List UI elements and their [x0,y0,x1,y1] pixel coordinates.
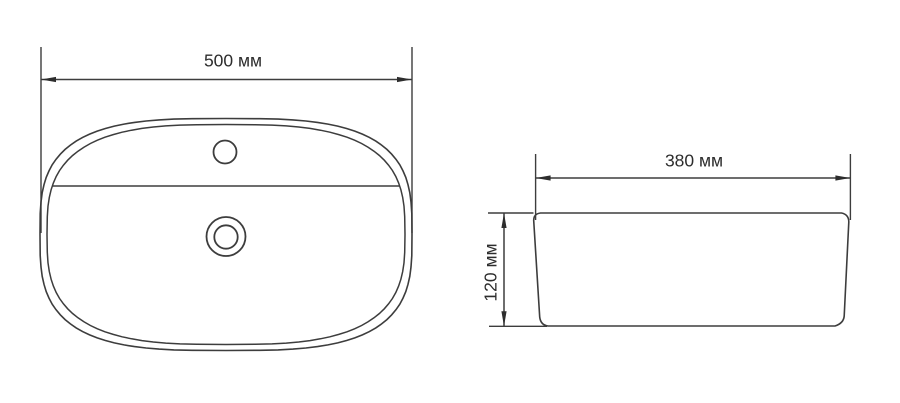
svg-text:380 мм: 380 мм [665,151,723,171]
svg-text:120 мм: 120 мм [481,243,501,301]
svg-text:500 мм: 500 мм [204,51,262,71]
